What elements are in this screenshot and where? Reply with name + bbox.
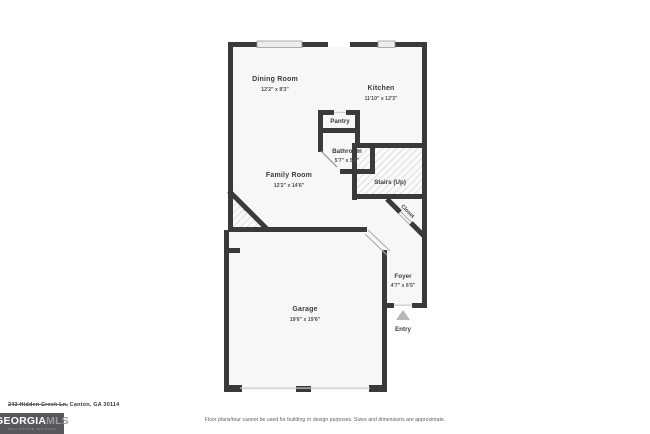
room-label-dining: Dining Room	[252, 76, 298, 83]
room-label-entry: Entry	[395, 326, 412, 333]
room-dims-kitchen: 11'10" x 12'3"	[364, 96, 398, 102]
room-label-family: Family Room	[266, 172, 312, 179]
property-address: 243 Hidden Creek Ln, Canton, GA 30114	[8, 402, 119, 408]
room-dims-family: 12'2" x 14'6"	[274, 183, 305, 189]
room-label-stairs: Stairs (Up)	[374, 179, 406, 186]
floor-plan-svg: Dining Room 12'2" x 8'3" Kitchen 11'10" …	[0, 0, 650, 434]
room-label-pantry: Pantry	[330, 118, 350, 125]
floor-plan-page: Dining Room 12'2" x 8'3" Kitchen 11'10" …	[0, 0, 650, 434]
room-label-garage: Garage	[292, 306, 317, 313]
room-label-bathroom: Bathroom	[332, 148, 362, 155]
room-dims-dining: 12'2" x 8'3"	[261, 87, 289, 93]
room-label-foyer: Foyer	[394, 273, 412, 280]
disclaimer-text: Floor plans/tour cannot be used for buil…	[0, 417, 650, 423]
room-dims-garage: 19'6" x 19'6"	[290, 317, 321, 323]
room-label-kitchen: Kitchen	[367, 85, 394, 92]
room-dims-foyer: 4'7" x 6'5"	[391, 283, 416, 289]
logo-tagline: REAL ESTATE SERVICES	[8, 428, 56, 431]
window-icon	[257, 41, 302, 48]
address-street: 243 Hidden Creek Ln,	[8, 402, 68, 408]
address-city: Canton, GA 30114	[68, 402, 120, 408]
entry-arrow-icon	[396, 310, 410, 320]
window-icon	[378, 41, 395, 48]
room-dims-bathroom: 5'7" x 5'4"	[335, 158, 360, 164]
